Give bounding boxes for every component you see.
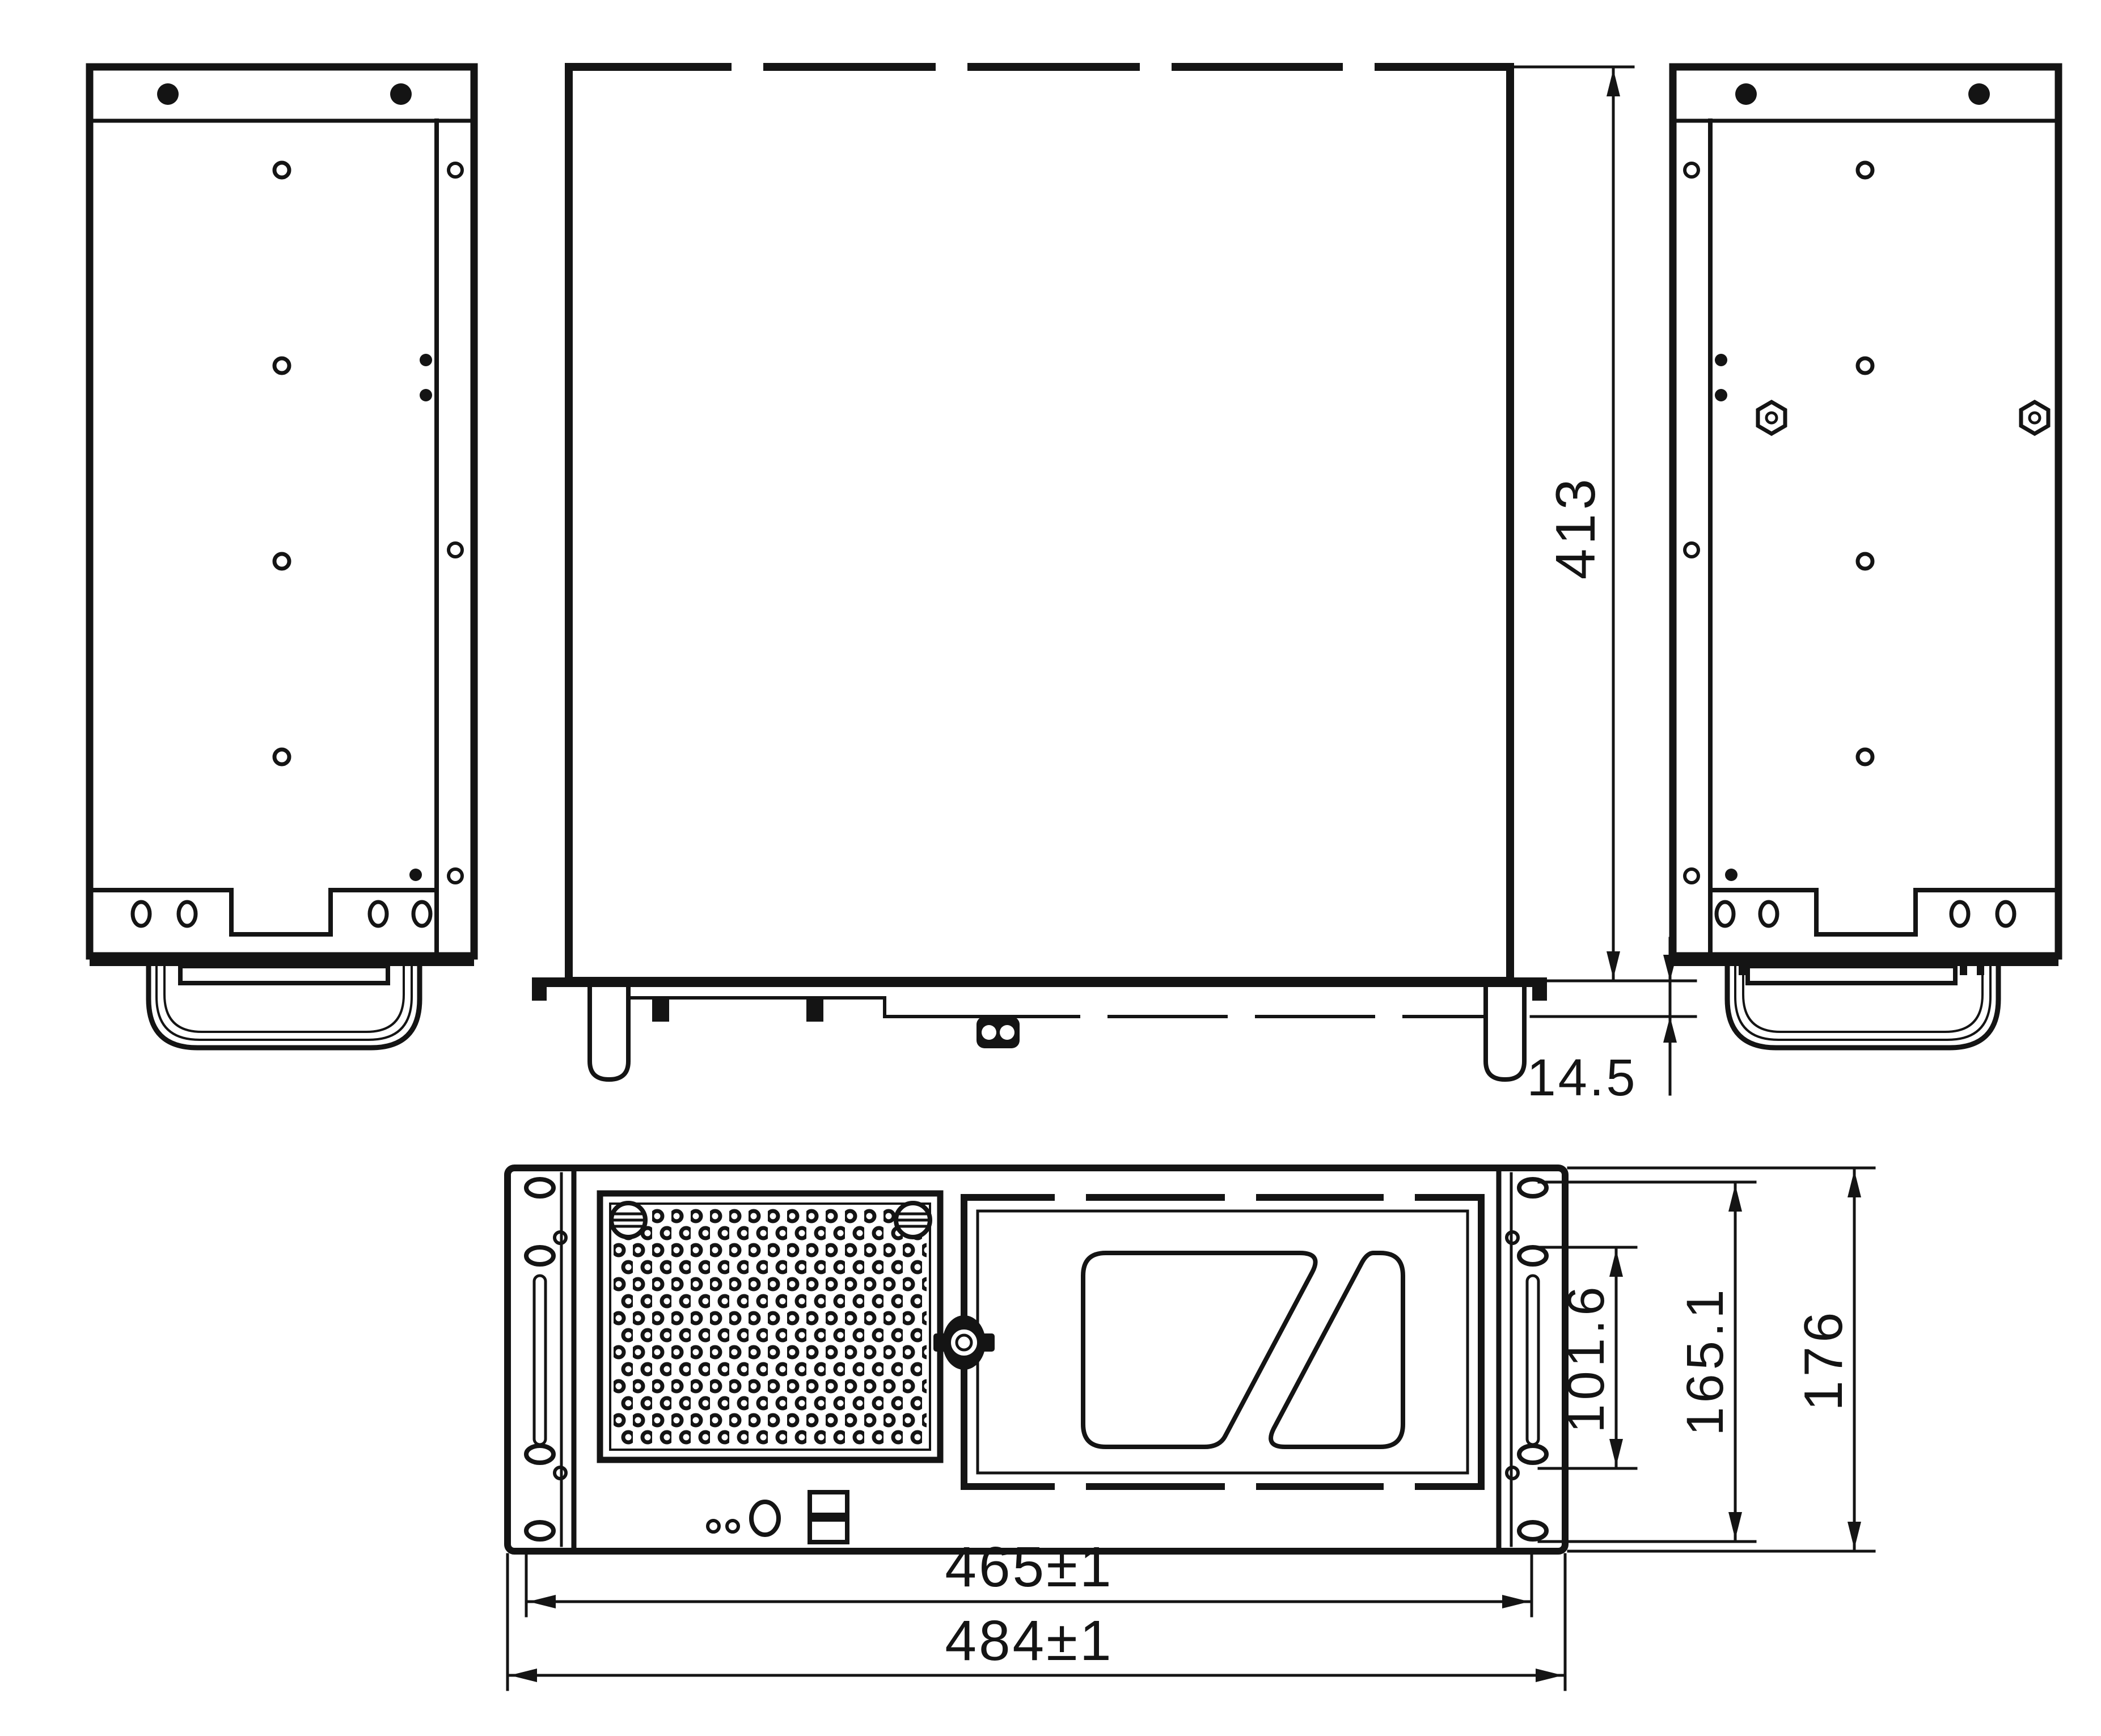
rivet-dot [420,389,432,401]
front-edge-band [532,977,1547,987]
hex-standoff [2021,402,2048,434]
front-handle-left [590,987,628,1079]
led-indicator [727,1521,738,1532]
rack-ear-left [526,1174,566,1546]
arrowhead-icon [1848,1522,1861,1549]
front-handle-right [1486,987,1524,1079]
screw-head [1735,83,1757,105]
bezel-foot [652,998,669,1022]
front-view [508,1168,1565,1551]
carry-handle [149,966,420,1048]
dimension-label-484: 484±1 [945,1609,1113,1673]
arrowhead-icon [1663,1017,1677,1043]
right-side-outline [1673,67,2058,956]
bracket-slots [1717,902,2014,926]
arrowhead-icon [1728,1184,1742,1212]
rivet-dot [1715,354,1727,366]
rack-ear-right [1507,1174,1546,1546]
rivet-dot [420,354,432,366]
arrowhead-icon [1609,1250,1623,1277]
dimension-label-176: 176 [1793,1308,1854,1411]
dimension-465: 465±1 [526,1535,1532,1616]
left-side-outline [90,67,474,956]
arrowhead-icon [1728,1512,1742,1539]
mounting-slot [526,1446,553,1463]
dimension-label-465: 465±1 [945,1535,1113,1599]
side-view-right [1673,67,2058,1048]
bottom-bracket-edge [94,890,436,934]
thumbscrew [611,1203,645,1237]
mounting-slot [526,1247,553,1264]
side-view-left [90,67,474,1048]
drawing-canvas: 413 14.5 [0,0,2101,1736]
mounting-slot [1519,1247,1546,1264]
front-door [933,1193,1481,1492]
door-latch-top [976,1017,1020,1048]
ear-relief-slot [534,1276,546,1445]
led-indicator [708,1521,719,1532]
dimension-label-101-6: 101.6 [1557,1282,1615,1433]
screw-head [390,83,412,105]
thumbscrew [896,1203,930,1237]
arrowhead-icon [1607,951,1620,979]
vent-grille [600,1193,940,1460]
rivet-dot [409,869,422,881]
dimension-label-14-5: 14.5 [1527,1049,1637,1107]
handle-mount-bar [1748,966,1955,983]
band-end-tab [1532,987,1547,1001]
arrowhead-icon [1848,1170,1861,1197]
bracket-slots [133,902,430,926]
bottom-bracket-edge [1711,890,2053,934]
grille-mesh [614,1208,927,1446]
carry-handle [1727,966,1998,1048]
rivet-dot [1725,869,1738,881]
top-view [532,61,1547,1079]
screw-head [157,83,179,105]
panel-holes [1685,163,1872,883]
mounting-slot [1519,1446,1546,1463]
arrowhead-icon [510,1669,537,1682]
panel-holes [274,163,462,883]
arrowhead-icon [529,1595,556,1608]
power-button [751,1502,779,1535]
door-window-right [1271,1253,1403,1447]
usb-ports [810,1492,847,1542]
rivet-dot [1715,389,1727,401]
hex-standoff [1758,402,1785,434]
dimension-101-6: 101.6 [1539,1247,1636,1468]
screw-head [1968,83,1990,105]
arrowhead-icon [1502,1595,1529,1608]
mounting-slot [526,1179,553,1196]
arrowhead-icon [1607,69,1620,96]
band-end-tab [532,987,547,1001]
bezel-foot [806,998,823,1022]
top-view-outline [569,67,1510,981]
mounting-slot [526,1522,553,1539]
mounting-slot [1519,1522,1546,1539]
door-inner-line [978,1211,1468,1473]
arrowhead-icon [1663,955,1677,981]
handle-mount-bar [180,966,388,983]
dimension-drawing: 413 14.5 [0,0,2101,1736]
ear-relief-slot [1527,1276,1538,1445]
dimension-413: 413 [1515,67,1696,981]
arrowhead-icon [1609,1439,1623,1466]
arrowhead-icon [1536,1669,1563,1682]
dimension-label-165-1: 165.1 [1676,1285,1734,1436]
dimension-label-413: 413 [1544,475,1607,580]
